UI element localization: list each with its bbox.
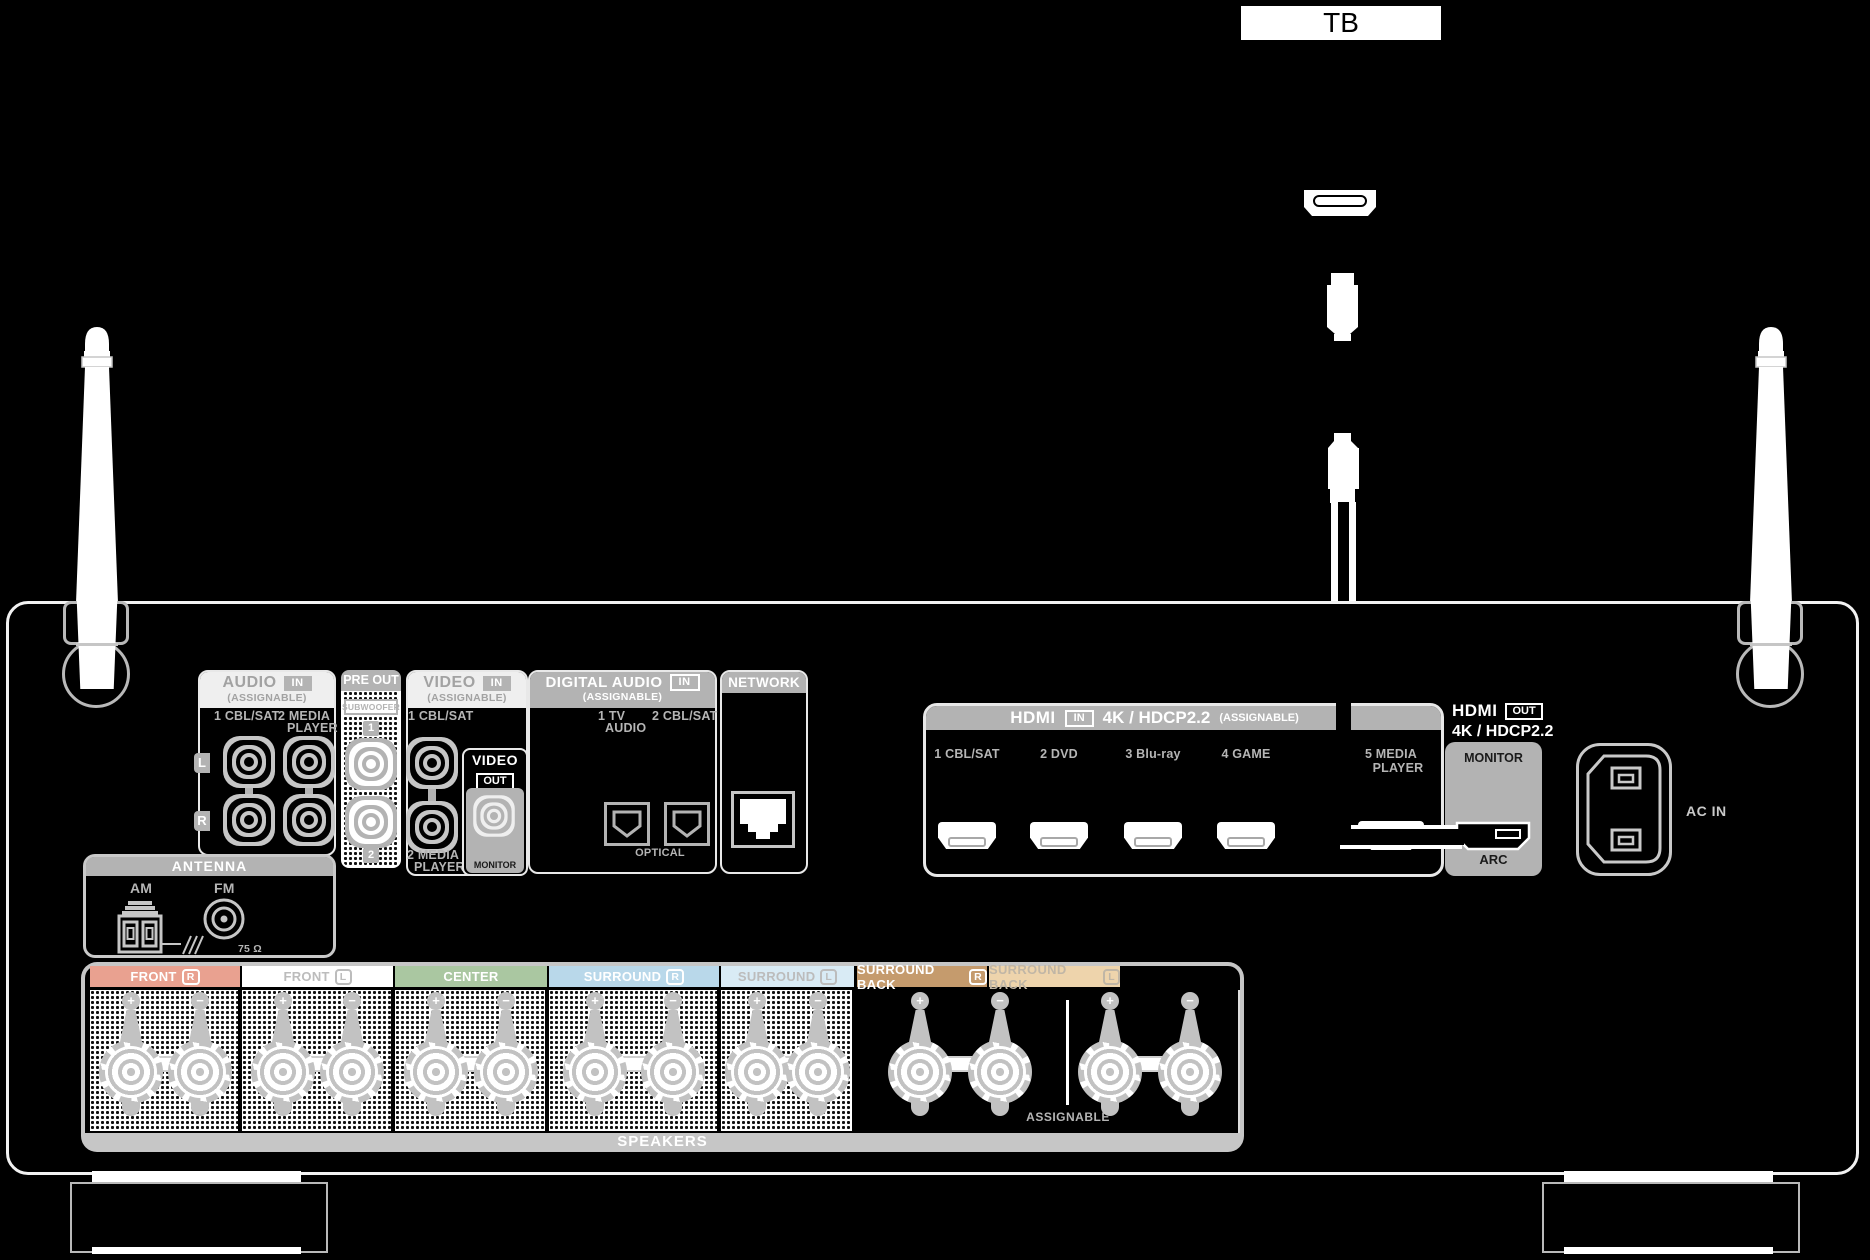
- speakers-title: SPEAKERS: [85, 1133, 1240, 1150]
- hdmi-port-icon: [1030, 822, 1088, 849]
- ethernet-port-icon: [731, 791, 795, 848]
- binding-post: −: [474, 990, 538, 1131]
- rca-jack-audio-1l: [244, 757, 254, 767]
- tv-label: TB: [1323, 7, 1359, 39]
- binding-post-cap: +: [911, 992, 929, 1010]
- binding-post-ring: [474, 1040, 538, 1104]
- binding-post-ring: [786, 1040, 850, 1104]
- speaker-channel-badge: R: [969, 969, 987, 985]
- pre-out-jack2-badge: 2: [363, 848, 379, 863]
- speaker-channel-badge: R: [182, 969, 200, 985]
- binding-post-cap: +: [274, 992, 292, 1010]
- rca-jack-subwoofer-1: [366, 759, 376, 769]
- speaker-channel-badge: R: [666, 969, 684, 985]
- am-label: AM: [130, 880, 152, 896]
- ground-icon: [161, 934, 205, 956]
- binding-post-cap: +: [586, 992, 604, 1010]
- binding-post-cap: −: [664, 992, 682, 1010]
- hdmi-port-slot: [1227, 837, 1265, 847]
- optical-label: OPTICAL: [625, 847, 695, 859]
- left-foot: [70, 1182, 328, 1253]
- binding-post-ring: [725, 1040, 789, 1104]
- hdmi-in-spec: 4K / HDCP2.2: [1103, 708, 1211, 728]
- speaker-terminal-area: +−: [90, 990, 238, 1131]
- hdmi-out-title: HDMI: [1452, 701, 1497, 721]
- rca-jack-audio-2r: [304, 815, 314, 825]
- hdmi-cable-hidden-segment: [1336, 633, 1351, 833]
- binding-post: +: [563, 990, 627, 1131]
- optical-port-icon: [604, 802, 650, 846]
- speaker-terminal-area: +−: [721, 990, 852, 1131]
- fm-label: FM: [214, 880, 235, 896]
- rca-jack-video-monitor: [490, 812, 498, 820]
- binding-post-tab: [1181, 1102, 1199, 1116]
- binding-post-ring: [1158, 1040, 1222, 1104]
- pre-out-title: PRE OUT: [343, 673, 399, 687]
- binding-post-stem: [272, 1010, 294, 1042]
- binding-post-ring: [404, 1040, 468, 1104]
- hdmi-port-icon: [1124, 822, 1182, 849]
- binding-post-stem: [495, 1010, 517, 1042]
- binding-post: +: [99, 990, 163, 1131]
- binding-post-stem: [1179, 1010, 1201, 1042]
- speaker-channel-label: FRONTR: [90, 966, 240, 987]
- video-in-label-1: 1 CBL/SAT: [408, 709, 473, 723]
- network-header: NETWORK: [722, 672, 806, 693]
- right-foot-top-bar: [1564, 1171, 1773, 1182]
- pre-out-jack1-badge: 1: [363, 721, 379, 736]
- network-title: NETWORK: [728, 675, 800, 690]
- digital-audio-title: DIGITAL AUDIO: [545, 674, 662, 691]
- binding-post-tab: [427, 1102, 445, 1116]
- rca-jack-audio-1r: [244, 815, 254, 825]
- digital-audio-badge: IN: [670, 674, 700, 691]
- speaker-channel-label: CENTER: [395, 966, 547, 987]
- binding-post-tab: [191, 1102, 209, 1116]
- digital-audio-label-2: 2 CBL/SAT: [652, 709, 717, 723]
- binding-post-cap: −: [809, 992, 827, 1010]
- fm-coax-icon: [202, 897, 246, 941]
- hdmi-in-header: HDMI IN 4K / HDCP2.2 (ASSIGNABLE): [926, 706, 1441, 730]
- rca-jack-audio-2l: [304, 757, 314, 767]
- binding-post-stem: [341, 1010, 363, 1042]
- audio-in-title: AUDIO: [222, 674, 276, 692]
- audio-in-header: AUDIOIN (ASSIGNABLE): [200, 672, 334, 708]
- rca-jack-subwoofer-2: [366, 817, 376, 827]
- audio-jack-link: [305, 786, 313, 799]
- pre-out-header: PRE OUT: [341, 670, 401, 691]
- video-in-assignable: (ASSIGNABLE): [408, 692, 526, 704]
- binding-post-stem: [662, 1010, 684, 1042]
- binding-post-cap: +: [748, 992, 766, 1010]
- hdmi-port-icon: [938, 822, 996, 849]
- audio-in-badge: IN: [284, 676, 312, 691]
- hdmi-in-section: HDMI IN 4K / HDCP2.2 (ASSIGNABLE): [923, 703, 1444, 877]
- binding-post-tab: [1101, 1102, 1119, 1116]
- antenna-title: ANTENNA: [172, 858, 247, 874]
- speaker-channel-text: SURROUND BACK: [857, 962, 964, 992]
- right-foot: [1542, 1182, 1800, 1253]
- antenna-header: ANTENNA: [86, 857, 333, 876]
- speaker-channel-label: SURROUNDR: [549, 966, 719, 987]
- speaker-channel-text: SURROUND: [584, 969, 662, 984]
- audio-in-assignable: (ASSIGNABLE): [200, 692, 334, 704]
- binding-post: +: [251, 990, 315, 1131]
- binding-post-tab: [748, 1102, 766, 1116]
- speaker-channel-label: SURROUND BACKR: [857, 966, 987, 987]
- hdmi-out-spec: 4K / HDCP2.2: [1452, 723, 1553, 741]
- binding-post-tab: [809, 1102, 827, 1116]
- binding-post-ring: [1078, 1040, 1142, 1104]
- hdmi-in-badge: IN: [1065, 710, 1094, 727]
- speaker-channel-text: SURROUND: [738, 969, 816, 984]
- ac-in-label: AC IN: [1686, 803, 1727, 819]
- video-in-label-2b: PLAYER: [414, 860, 465, 874]
- speaker-channel-label: SURROUND BACKL: [989, 966, 1120, 987]
- rca-jack-video-2: [427, 822, 437, 832]
- binding-post-tab: [274, 1102, 292, 1116]
- hdmi-out-monitor-label: MONITOR: [1445, 751, 1542, 765]
- antenna-section: ANTENNA AM FM 75 Ω: [83, 854, 336, 958]
- hdmi-in-port-label-line: 5 MEDIA: [1346, 747, 1436, 761]
- speaker-channel-text: FRONT: [284, 969, 330, 984]
- speaker-channel-badge: L: [820, 969, 837, 985]
- surround-back-area: ASSIGNABLE +−+−: [855, 990, 1240, 1133]
- hdmi-in-port-label-line: PLAYER: [1360, 761, 1436, 775]
- right-antenna-rod-line: [1750, 643, 1792, 646]
- video-in-title: VIDEO: [423, 674, 475, 692]
- hdmi-port-slot: [1040, 837, 1078, 847]
- fm-impedance-label: 75 Ω: [238, 943, 262, 955]
- video-out-panel: MONITOR: [466, 788, 524, 873]
- hdmi-out-socket-plug-icon: [1454, 819, 1532, 853]
- rear-panel-connection-diagram: TB: [0, 0, 1870, 1260]
- audio-in-label-2b: PLAYER: [287, 721, 338, 735]
- hdmi-in-port-label: 5 MEDIAPLAYER: [1346, 747, 1436, 775]
- hdmi-cable-horizontal: [1340, 825, 1462, 849]
- digital-audio-assignable: (ASSIGNABLE): [530, 691, 715, 703]
- binding-post: +: [1078, 990, 1142, 1131]
- speakers-inner: ASSIGNABLE +−+− FRONTR+−FRONTL+−CENTER+−…: [85, 966, 1240, 1133]
- hdmi-in-port-label: 4 GAME: [1186, 747, 1306, 761]
- hdmi-plug-upper-icon: [1320, 271, 1365, 343]
- hdmi-out-badge: OUT: [1505, 703, 1542, 720]
- binding-post-tab: [664, 1102, 682, 1116]
- speaker-channel-label: SURROUNDL: [721, 966, 854, 987]
- hdmi-out-header: HDMI OUT: [1452, 701, 1543, 721]
- binding-post-ring: [888, 1040, 952, 1104]
- rca-jack-video-1: [427, 758, 437, 768]
- speaker-terminal-area: +−: [242, 990, 391, 1131]
- binding-post-ring: [99, 1040, 163, 1104]
- left-foot-bottom-bar: [92, 1247, 301, 1254]
- right-antenna-icon: [1736, 314, 1806, 604]
- video-out-title: VIDEO: [472, 752, 518, 768]
- video-out-monitor-label: MONITOR: [466, 860, 524, 870]
- binding-post-ring: [641, 1040, 705, 1104]
- speaker-channel-text: FRONT: [130, 969, 176, 984]
- am-terminal-icon: [114, 901, 166, 955]
- surround-back-divider: [1066, 1000, 1069, 1105]
- audio-right-tab: R: [194, 811, 210, 831]
- speaker-terminal-area: +−: [549, 990, 717, 1131]
- binding-post: +: [888, 990, 952, 1131]
- hdmi-out-monitor-panel: MONITOR ARC: [1445, 742, 1542, 876]
- binding-post-cap: +: [1101, 992, 1119, 1010]
- pre-out-body: [341, 691, 401, 868]
- audio-in-section: AUDIOIN (ASSIGNABLE): [198, 670, 336, 856]
- hdmi-in-assignable: (ASSIGNABLE): [1219, 712, 1298, 724]
- binding-post-stem: [746, 1010, 768, 1042]
- binding-post-ring: [320, 1040, 384, 1104]
- speaker-channel-badge: L: [335, 969, 352, 985]
- speaker-channel-text: SURROUND BACK: [989, 962, 1098, 992]
- binding-post-tab: [991, 1102, 1009, 1116]
- hdmi-port-slot: [1134, 837, 1172, 847]
- speaker-channel-badge: L: [1103, 969, 1120, 985]
- binding-post-ring: [968, 1040, 1032, 1104]
- binding-post-tab: [497, 1102, 515, 1116]
- binding-post-ring: [251, 1040, 315, 1104]
- binding-post-tab: [586, 1102, 604, 1116]
- optical-port-icon: [664, 802, 710, 846]
- speaker-channel-text: CENTER: [443, 969, 498, 984]
- binding-post-stem: [189, 1010, 211, 1042]
- audio-in-label-1: 1 CBL/SAT: [214, 709, 279, 723]
- speakers-section: ASSIGNABLE +−+− FRONTR+−FRONTL+−CENTER+−…: [81, 962, 1244, 1152]
- binding-post-stem: [425, 1010, 447, 1042]
- speaker-channel-label: FRONTL: [242, 966, 393, 987]
- binding-post: −: [968, 990, 1032, 1131]
- binding-post-ring: [563, 1040, 627, 1104]
- binding-post-stem: [807, 1010, 829, 1042]
- binding-post: −: [168, 990, 232, 1131]
- binding-post: −: [786, 990, 850, 1131]
- ac-inlet-icon: [1582, 752, 1666, 866]
- binding-post-stem: [989, 1010, 1011, 1042]
- binding-post-ring: [168, 1040, 232, 1104]
- subwoofer-label: SUBWOOFER: [342, 702, 400, 712]
- right-foot-bottom-bar: [1564, 1247, 1773, 1254]
- binding-post-stem: [1099, 1010, 1121, 1042]
- audio-jack-link: [245, 786, 253, 799]
- tv-label-box: TB: [1241, 6, 1441, 40]
- binding-post-stem: [584, 1010, 606, 1042]
- binding-post-cap: −: [191, 992, 209, 1010]
- binding-post: +: [725, 990, 789, 1131]
- binding-post-tab: [911, 1102, 929, 1116]
- left-foot-top-bar: [92, 1171, 301, 1182]
- hdmi-port-slot: [948, 837, 986, 847]
- binding-post-stem: [909, 1010, 931, 1042]
- left-antenna-icon: [62, 314, 132, 604]
- binding-post: −: [1158, 990, 1222, 1131]
- hdmi-plug-lower-icon: [1320, 431, 1365, 505]
- binding-post-cap: −: [343, 992, 361, 1010]
- binding-post-tab: [122, 1102, 140, 1116]
- binding-post: −: [320, 990, 384, 1131]
- video-jack-link: [428, 788, 436, 801]
- left-antenna-rod-line: [76, 643, 118, 646]
- binding-post-cap: −: [991, 992, 1009, 1010]
- binding-post-cap: +: [122, 992, 140, 1010]
- tv-hdmi-receptacle-icon: [1303, 189, 1377, 217]
- hdmi-port-icon: [1217, 822, 1275, 849]
- audio-left-tab: L: [194, 753, 210, 773]
- binding-post-cap: −: [1181, 992, 1199, 1010]
- speaker-terminal-area: +−: [395, 990, 545, 1131]
- hdmi-out-arc-label: ARC: [1445, 852, 1542, 867]
- binding-post-cap: +: [427, 992, 445, 1010]
- binding-post-stem: [120, 1010, 142, 1042]
- binding-post: −: [641, 990, 705, 1131]
- video-in-badge: IN: [483, 676, 511, 691]
- binding-post-tab: [343, 1102, 361, 1116]
- digital-audio-label-1b: AUDIO: [605, 721, 646, 735]
- video-in-header: VIDEOIN (ASSIGNABLE): [408, 672, 526, 708]
- binding-post: +: [404, 990, 468, 1131]
- hdmi-in-title: HDMI: [1010, 708, 1055, 728]
- binding-post-cap: −: [497, 992, 515, 1010]
- digital-audio-header: DIGITAL AUDIOIN (ASSIGNABLE): [530, 672, 715, 708]
- hdmi-cable-joint: [1450, 829, 1464, 845]
- subwoofer-label-box: SUBWOOFER: [344, 699, 398, 715]
